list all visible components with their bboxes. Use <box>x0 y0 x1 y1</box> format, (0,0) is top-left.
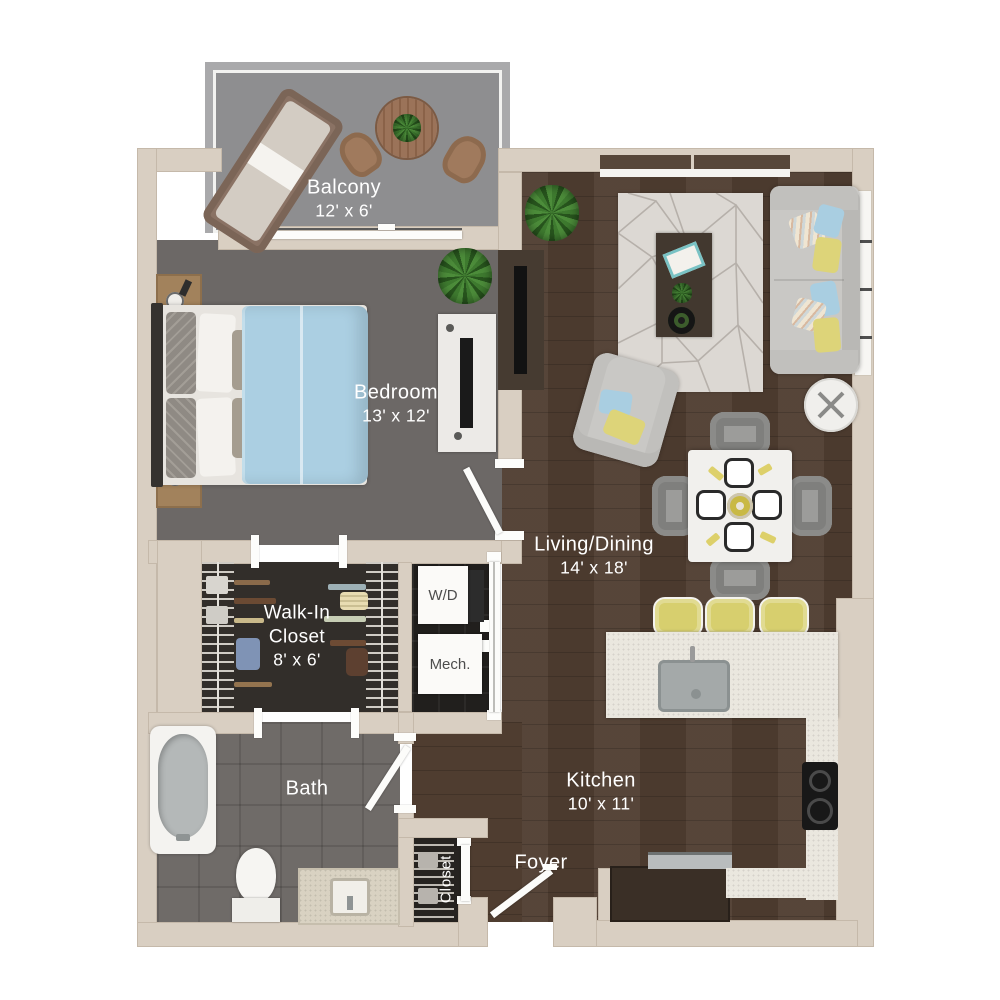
bar-stool-2 <box>705 597 755 637</box>
dishwasher <box>648 852 732 869</box>
pillow-white-1 <box>196 313 236 393</box>
wall-bedroom-closet-right <box>340 540 502 564</box>
clothes-r3 <box>330 640 366 646</box>
walkin-name-line1: Walk-In <box>264 601 331 625</box>
balcony-dims: 12' x 6' <box>307 201 381 223</box>
clothes-blue-shirt <box>236 638 260 670</box>
balcony-label: Balcony 12' x 6' <box>307 176 381 223</box>
walkin-closet-label: Walk-In Closet 8' x 6' <box>264 601 331 670</box>
burner-1 <box>809 770 831 792</box>
clothes-r2 <box>324 616 366 622</box>
clothes-l4 <box>234 682 272 687</box>
balcony-name: Balcony <box>307 176 381 201</box>
closet-opening-jamb-right <box>339 535 347 568</box>
nightstand-phone <box>179 279 192 296</box>
bedroom-name: Bedroom <box>354 381 438 406</box>
closet-bath-jamb-left <box>254 708 262 738</box>
floor-plan: W/D Mech. <box>0 0 1000 1000</box>
armchair-pillow-yellow <box>602 408 647 446</box>
sofa-armrest-bottom <box>770 350 858 374</box>
laundry-door-jamb-top <box>487 552 501 562</box>
wall-right-lower <box>836 598 874 947</box>
bathtub-basin <box>158 734 208 838</box>
entry-closet-door <box>461 845 470 901</box>
centerpiece-bowl <box>727 493 753 519</box>
plate-north <box>724 458 754 488</box>
sink-faucet <box>690 646 695 662</box>
entry-closet-top-wall <box>398 818 488 838</box>
side-table <box>804 378 858 432</box>
closet-box-2 <box>206 606 228 624</box>
window-top-band <box>600 155 790 169</box>
burner-2 <box>807 798 833 824</box>
sliding-door-track <box>256 228 462 230</box>
napkin-3 <box>759 531 776 544</box>
wall-closet-bath-right <box>356 712 502 734</box>
laundry-box: W/D <box>418 566 468 624</box>
closet-bath-jamb-right <box>351 708 359 738</box>
living-dining-label: Living/Dining 14' x 18' <box>534 533 654 580</box>
toilet <box>232 848 280 924</box>
dresser-deco-1 <box>446 324 454 332</box>
kitchen-counter-bottom <box>726 868 838 898</box>
closet-opening-jamb-left <box>251 535 259 568</box>
kitchen-cabinet-dark <box>610 866 730 922</box>
walkin-name-line2: Closet <box>264 625 331 649</box>
entry-closet-name: Closet <box>438 855 457 904</box>
sliding-door-handle <box>378 224 395 230</box>
bath-vanity <box>298 868 400 925</box>
bar-stool-1 <box>653 597 703 637</box>
sofa-backrest <box>842 190 860 370</box>
bed <box>155 305 367 485</box>
bathtub <box>150 726 216 854</box>
entry-closet-box-2 <box>418 888 438 904</box>
table-plant <box>393 114 421 142</box>
wall-closet-laundry <box>398 562 412 712</box>
bath-name: Bath <box>286 777 329 802</box>
bedroom-dresser <box>438 314 496 452</box>
napkin-2 <box>757 463 773 476</box>
duvet <box>242 306 368 484</box>
tv-console <box>498 250 544 390</box>
bath-label: Bath <box>286 777 329 802</box>
living-dining-name: Living/Dining <box>534 533 654 558</box>
dining-table <box>688 450 792 562</box>
pillow-white-2 <box>196 397 236 477</box>
coffee-table <box>656 233 712 337</box>
duvet-fold <box>300 306 303 484</box>
laundry-bifold-seam <box>493 562 495 712</box>
kitchen-dims: 10' x 11' <box>566 794 636 816</box>
clothes-r1 <box>328 584 366 590</box>
plate-east <box>752 490 782 520</box>
napkin-1 <box>708 466 725 482</box>
bedroom-label: Bedroom 13' x 12' <box>354 381 438 428</box>
sofa-pillow-yellow-1 <box>812 236 842 273</box>
entry-closet-box-1 <box>418 852 438 868</box>
window-top-divider <box>691 155 694 169</box>
living-tv <box>514 266 527 374</box>
bath-door-jamb-top <box>394 733 416 741</box>
kitchen-name: Kitchen <box>566 769 636 794</box>
sink-drain <box>691 689 701 699</box>
bathtub-faucet <box>176 834 190 841</box>
mechanical-box: Mech. <box>418 634 482 694</box>
clothes-roll-cream <box>340 592 368 610</box>
living-plant <box>525 185 579 241</box>
kitchen-sink <box>658 660 730 712</box>
laundry-label: W/D <box>428 587 457 604</box>
closet-shelf-wall <box>157 540 202 734</box>
closet-rack-right-rail <box>381 562 383 712</box>
bath-door-jamb-bottom <box>394 805 416 813</box>
sofa-armrest-top <box>770 186 858 210</box>
coffee-table-book <box>662 241 705 279</box>
plate-south <box>724 522 754 552</box>
clothes-l1 <box>234 580 270 585</box>
dining-chair-south <box>710 556 770 600</box>
headboard <box>151 303 163 487</box>
balcony-sliding-door <box>256 231 462 239</box>
sofa <box>770 186 860 374</box>
wall-bottom-right <box>596 920 858 947</box>
coffee-table-plant <box>672 283 692 303</box>
window-top-sill <box>600 169 790 177</box>
napkin-4 <box>705 532 720 546</box>
bar-stool-3 <box>759 597 809 637</box>
walkin-dims: 8' x 6' <box>264 649 331 671</box>
entry-closet-label: Closet <box>438 855 457 904</box>
dining-chair-east <box>788 476 832 536</box>
living-dining-dims: 14' x 18' <box>534 558 654 580</box>
bedroom-tv <box>460 338 473 428</box>
toilet-bowl <box>236 848 276 902</box>
sofa-pillow-yellow-2 <box>813 317 842 353</box>
closet-box-1 <box>206 576 228 594</box>
bedroom-door-jamb-top <box>495 459 524 468</box>
coffee-table-bowl <box>668 307 695 334</box>
kitchen-label: Kitchen 10' x 11' <box>566 769 636 816</box>
pillow-gray-pattern-2 <box>166 398 196 478</box>
plate-west <box>696 490 726 520</box>
entry-jamb-right <box>553 897 597 947</box>
bedroom-plant <box>438 248 492 304</box>
clothes-l3 <box>234 618 264 623</box>
bedroom-dims: 13' x 12' <box>354 406 438 428</box>
toilet-tank <box>232 898 280 922</box>
foyer-name: Foyer <box>514 851 567 876</box>
vanity-faucet <box>347 896 353 910</box>
entry-jamb-left <box>458 897 488 947</box>
foyer-label: Foyer <box>514 851 567 876</box>
dresser-deco-2 <box>454 432 462 440</box>
mechanical-label: Mech. <box>430 656 471 673</box>
cooktop <box>802 762 838 830</box>
pillow-gray-pattern-1 <box>166 312 196 394</box>
clothes-roll-brown <box>346 648 368 676</box>
